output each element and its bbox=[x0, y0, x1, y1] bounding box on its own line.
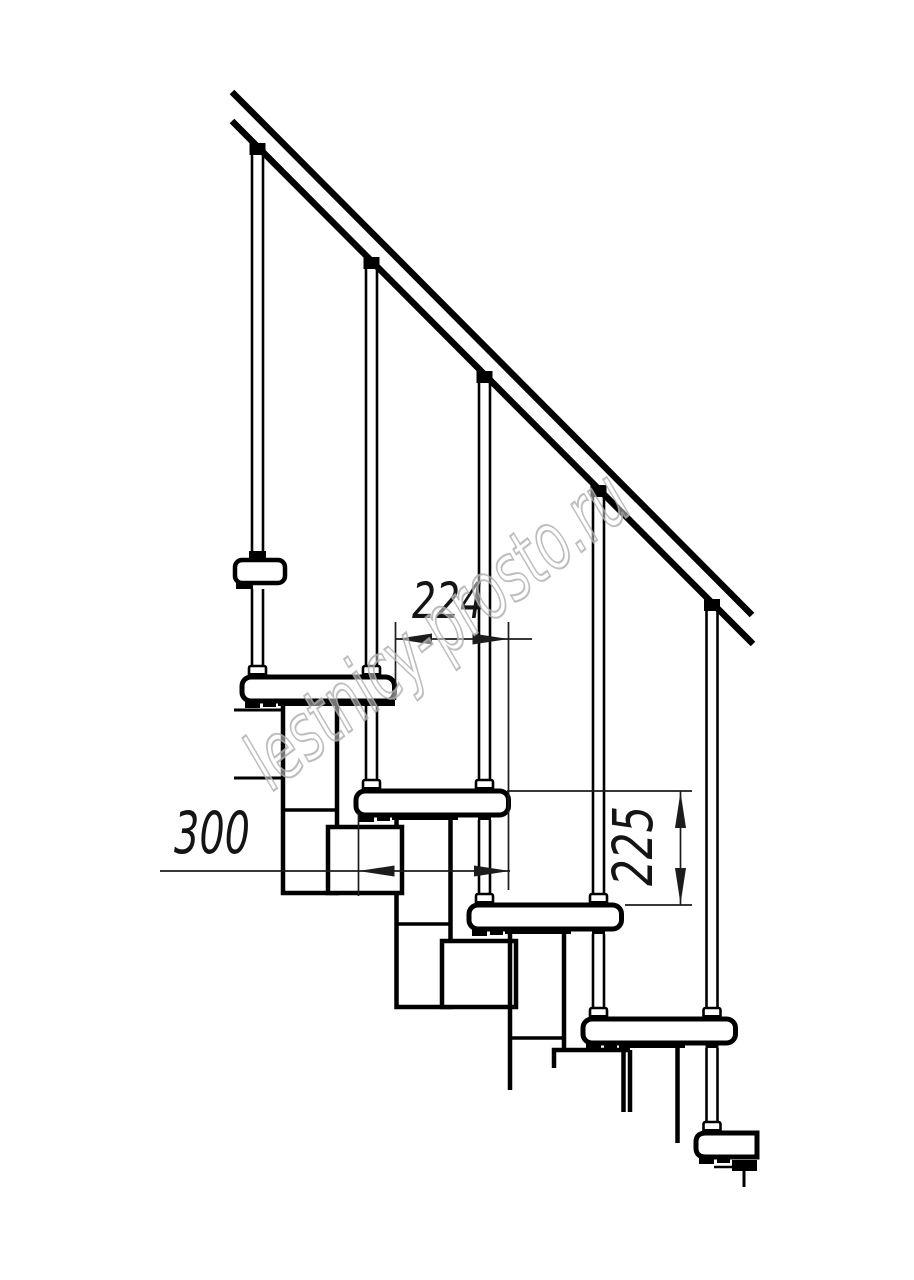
rail-clamp-icon bbox=[477, 371, 493, 383]
arrow-right-icon bbox=[474, 866, 510, 877]
module-box-1 bbox=[328, 827, 402, 893]
drawing-page: 224 300 225 lestnicy-prosto.ru bbox=[0, 0, 914, 1280]
staircase-drawing: 224 300 225 lestnicy-prosto.ru bbox=[0, 0, 914, 1280]
rail-clamp-icon bbox=[250, 143, 266, 155]
dimension-rise-label: 225 bbox=[601, 806, 665, 886]
rail-clamp-icon bbox=[704, 599, 720, 611]
tread-2 bbox=[356, 791, 509, 815]
dimension-depth-label: 300 bbox=[174, 799, 250, 867]
baluster-1 bbox=[235, 143, 285, 677]
rail-clamp-icon bbox=[364, 257, 380, 269]
dimension-rise: 225 bbox=[507, 791, 692, 905]
module-box-3-top bbox=[554, 1050, 630, 1068]
bracket-clip bbox=[236, 583, 253, 589]
watermark-text: lestnicy-prosto.ru bbox=[227, 452, 647, 807]
baluster-5 bbox=[704, 599, 721, 1133]
arrow-up-icon bbox=[675, 792, 686, 828]
arrow-down-icon bbox=[675, 868, 686, 904]
module-box-2 bbox=[442, 941, 516, 1007]
lower-step-stub bbox=[732, 1160, 757, 1171]
rail-post-bracket bbox=[235, 560, 285, 583]
tread-3 bbox=[469, 905, 622, 929]
tread-5 bbox=[696, 1133, 757, 1157]
tread-4 bbox=[583, 1019, 736, 1043]
